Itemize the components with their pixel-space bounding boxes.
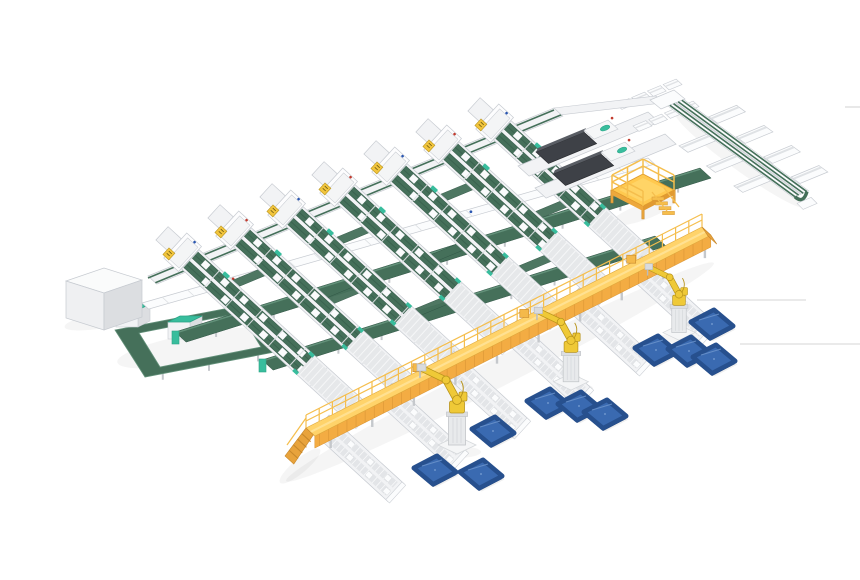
branch-tray: [791, 166, 828, 184]
branch-tray: [736, 125, 773, 143]
buffer-tray: [663, 79, 682, 90]
factory-render-canvas: [0, 0, 860, 580]
walkway-crossover-step: [627, 255, 636, 263]
sorting-facility-illustration: [0, 0, 860, 580]
control-cabinet: [66, 268, 142, 330]
walkway-crossover-step: [520, 309, 529, 317]
outfeed-distribution-line: [668, 100, 828, 210]
pallet-panel: [460, 460, 505, 492]
branch-tray: [709, 105, 746, 123]
branch-tray: [764, 145, 801, 163]
